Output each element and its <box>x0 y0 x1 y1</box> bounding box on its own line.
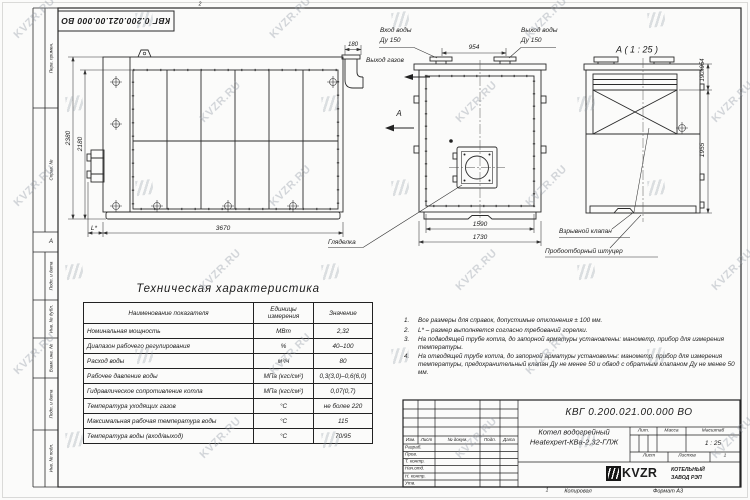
col-podp: Подп. <box>484 438 496 443</box>
dim-base-outer: 1730 <box>473 234 487 241</box>
company-name-line2: ЗАВОД РЭП <box>671 476 702 481</box>
row-razrab: Разраб. <box>405 446 422 451</box>
dim-section-height: 1955 <box>700 143 707 157</box>
label-gas-outlet: Выход газов <box>366 58 404 65</box>
spec-row: Расход водым³/ч80 <box>84 354 373 369</box>
spec-col-name: Наименование показателя <box>84 303 254 324</box>
note-item: 3.На подводящей трубе котла, до запорной… <box>404 336 740 351</box>
spec-row: Рабочее давление водыМПа (кгс/см²)0,3(3,… <box>84 369 373 384</box>
strip-label-perv-primen: Перв. примен. <box>49 43 54 74</box>
product-name-line2: Heatexpert-КВа-2,32-ГЛЖ <box>530 438 618 446</box>
dim-height-inner: 2180 <box>78 137 85 151</box>
note-item: 2.L* – размер выполняется согласно требо… <box>404 327 740 335</box>
section-view-title: А ( 1 : 25 ) <box>616 46 658 55</box>
strip-label-inv-dubl: Инв. № дубл. <box>49 305 54 333</box>
kvzr-brand-text: KVZR <box>622 466 657 480</box>
label-explosion-valve: Взрывной клапан <box>559 229 612 236</box>
dim-gas-outlet: 180 <box>348 42 358 48</box>
spec-col-units: Единицы измерения <box>254 303 314 324</box>
zone-mark-left: А <box>49 239 53 245</box>
strip-label-inv-podl: Инв. № подл. <box>49 444 54 473</box>
spec-row: Гидравлическое сопротивление котлаМПа (к… <box>84 384 373 399</box>
spec-row: Диапазон рабочего регулирования%40–100 <box>84 339 373 354</box>
lifting-points <box>110 52 688 212</box>
dim-base-inner: 1590 <box>473 221 487 228</box>
dim-length: 3670 <box>216 225 230 232</box>
label-water-outlet: Выход воды <box>521 28 558 35</box>
top-stamp-number: КВГ 0.200.021.00.000 ВО <box>61 16 170 26</box>
col-izm: Изм. <box>406 438 416 443</box>
title-block-doc-number: КВГ 0.200.021.00.000 ВО <box>565 408 692 418</box>
company-name-line1: КОТЕЛЬНЫЙ <box>671 468 705 473</box>
spec-row: Температура воды (вход/выход)°С70/95 <box>84 429 373 444</box>
product-name-line1: Котел водогрейный <box>538 428 609 436</box>
label-sheet: Лист <box>643 455 655 460</box>
footer-copied-by: Копировал <box>564 489 591 495</box>
col-list: Лист <box>421 438 433 443</box>
section-view <box>584 57 704 213</box>
centerlines <box>449 58 643 224</box>
label-scale: Масштаб <box>702 429 724 434</box>
col-data: Дата <box>503 438 515 443</box>
row-utv: Утв. <box>405 482 415 487</box>
dim-height-outer: 2380 <box>66 131 73 145</box>
spec-table-title: Техническая характеристика <box>83 283 373 295</box>
strip-label-sprav-no: Справ. № <box>49 160 54 181</box>
view-arrows <box>385 74 430 131</box>
label-lit: Лит. <box>638 429 649 434</box>
col-docnum: № докум. <box>448 438 468 443</box>
kvzr-logo-icon <box>606 466 621 481</box>
sheets-value: 1 <box>724 455 727 460</box>
drawing-sheet: КВГ 0.200.021.00.000 ВО 2 А 1 Перв. прим… <box>0 0 750 500</box>
note-item: 1.Все размеры для справок, допустимые от… <box>404 317 740 325</box>
spec-row: Максимальная рабочая температура воды°С1… <box>84 414 373 429</box>
spec-header-row: Наименование показателя Единицы измерени… <box>84 303 373 324</box>
strip-label-vzam-inv: Взам. инв. № <box>49 344 54 372</box>
dim-burner-l: L* <box>91 225 97 232</box>
label-water-outlet-dn: Ду 150 <box>521 38 542 45</box>
technical-notes: 1.Все размеры для справок, допустимые от… <box>404 317 740 378</box>
strip-label-podp-data-1: Подп. и дата <box>49 262 54 291</box>
zone-mark-top: 2 <box>199 2 202 7</box>
dim-section-top: 190х954 <box>700 58 706 81</box>
label-sheets: Листов <box>678 455 695 460</box>
bolt-dots <box>449 139 490 181</box>
footer-format: Формат А3 <box>653 489 683 495</box>
view-letter-a: А <box>396 110 401 118</box>
spec-table: Наименование показателя Единицы измерени… <box>83 302 373 444</box>
dim-nozzle-span: 954 <box>469 45 480 52</box>
label-sight-glass: Гляделка <box>328 240 356 247</box>
strip-label-podp-data-2: Подп. и дата <box>49 390 54 419</box>
scale-value: 1 : 25 <box>705 440 721 447</box>
spec-col-value: Значение <box>314 303 373 324</box>
label-water-inlet-dn: Ду 150 <box>380 38 401 45</box>
top-stamp-box: КВГ 0.200.021.00.000 ВО <box>58 11 174 31</box>
label-water-inlet: Вход воды <box>380 28 412 35</box>
row-nkontr: Н. контр. <box>405 474 426 479</box>
spec-row: Номинальная мощностьМВт2,32 <box>84 324 373 339</box>
label-mass: Масса <box>664 429 678 434</box>
zone-mark-bottom: 1 <box>546 489 549 494</box>
label-sampling-fitting: Пробоотборный штуцер <box>545 249 623 256</box>
row-nachotd: Нач.отд. <box>405 467 424 472</box>
spec-row: Температура уходящих газов°Сне более 220 <box>84 399 373 414</box>
row-tkontr: Т. контр. <box>405 460 425 465</box>
dimension-lines <box>68 45 712 257</box>
note-item: 4.На отводящей трубе котла, до запорной … <box>404 353 740 376</box>
side-view <box>87 50 363 219</box>
row-prov: Пров. <box>405 453 417 458</box>
